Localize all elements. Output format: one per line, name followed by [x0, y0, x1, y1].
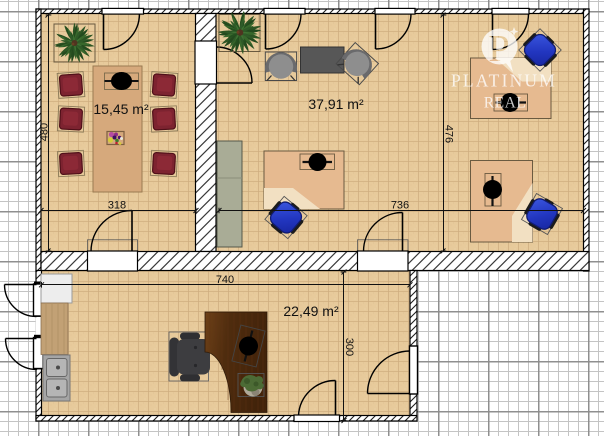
svg-text:318: 318: [108, 200, 126, 212]
svg-text:37,91 m²: 37,91 m²: [308, 96, 364, 112]
svg-text:736: 736: [391, 200, 409, 212]
svg-text:15,45 m²: 15,45 m²: [93, 101, 149, 117]
svg-text:476: 476: [443, 125, 455, 143]
svg-text:PLATINUM: PLATINUM: [451, 71, 557, 91]
svg-text:740: 740: [216, 274, 234, 286]
svg-text:300: 300: [343, 338, 355, 356]
svg-text:22,49 m²: 22,49 m²: [283, 303, 339, 319]
svg-text:480: 480: [39, 123, 51, 141]
svg-text:REAL: REAL: [484, 95, 526, 112]
